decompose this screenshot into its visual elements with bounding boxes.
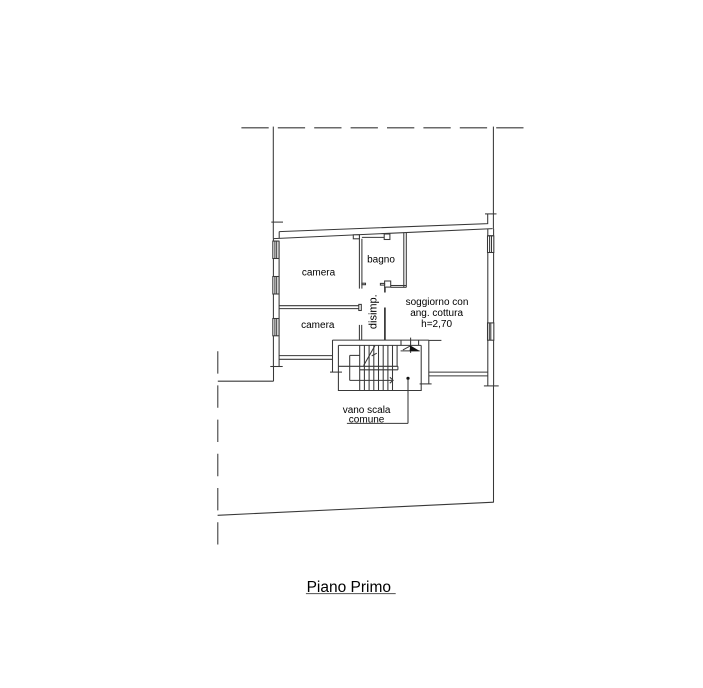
svg-text:camera: camera [302, 267, 336, 278]
svg-text:soggiorno con: soggiorno con [406, 297, 469, 308]
svg-text:ang. cottura: ang. cottura [410, 308, 463, 319]
svg-text:h=2,70: h=2,70 [421, 319, 452, 330]
svg-text:camera: camera [301, 320, 335, 331]
svg-text:comune: comune [349, 415, 385, 426]
svg-text:disimp.: disimp. [367, 294, 379, 329]
svg-text:bagno: bagno [367, 255, 395, 266]
